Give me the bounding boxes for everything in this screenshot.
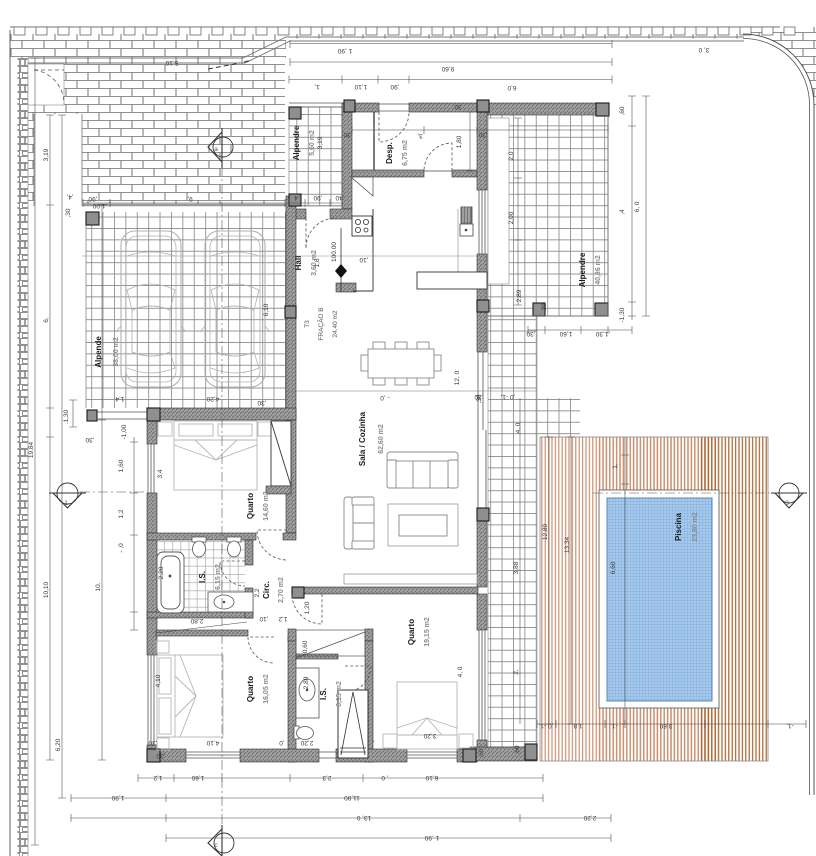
svg-text:1,60: 1,60 [559,330,572,337]
svg-text:,30: ,30 [257,399,266,406]
svg-text:,30: ,30 [526,330,535,337]
svg-text:Quarto: Quarto [407,619,416,645]
svg-text:2,80: 2,80 [190,617,203,624]
svg-text:I.S.: I.S. [319,688,328,700]
svg-text:1,2: 1,2 [153,774,162,781]
svg-text:a: a [214,146,218,153]
svg-text:1,4: 1,4 [115,395,124,402]
svg-text:4,10: 4,10 [206,739,219,746]
svg-text:16,05 m2: 16,05 m2 [263,674,270,704]
svg-text:,: , [373,739,375,746]
svg-text:1,60: 1,60 [191,774,204,781]
svg-text:30: 30 [541,303,548,311]
svg-text:Sala / Cozinha: Sala / Cozinha [358,411,367,466]
svg-text:3,4: 3,4 [157,469,164,478]
svg-text:Quarto: Quarto [246,493,255,519]
svg-text:1,80: 1,80 [456,135,463,148]
svg-text:24,40 m2: 24,40 m2 [332,310,339,337]
svg-text:100.00: 100.00 [331,242,338,262]
svg-text:12,89: 12,89 [542,523,549,540]
svg-text:6,: 6, [43,317,50,323]
svg-text:3,88: 3,88 [513,561,520,574]
svg-text:Desp.: Desp. [385,142,394,164]
svg-text:Alpendre: Alpendre [292,125,301,160]
svg-text:,90: ,90 [88,195,97,202]
svg-text:19,15 m2: 19,15 m2 [424,617,431,647]
svg-text:,30: ,30 [156,752,165,759]
svg-text:4,10: 4,10 [155,674,162,687]
svg-text:,4,: ,4, [66,193,73,200]
svg-text:-1,30: -1,30 [619,307,626,322]
svg-text:10,10: 10,10 [43,581,50,598]
svg-text:6,10: 6,10 [263,303,270,316]
svg-text:I.S.: I.S. [198,571,207,583]
svg-text:,10: ,10 [359,256,368,263]
svg-text:1 ,90: 1 ,90 [337,47,352,54]
svg-text:1,20: 1,20 [304,601,311,614]
svg-text:3: 3 [785,500,789,507]
svg-text:2,20: 2,20 [300,739,313,746]
svg-text:,40: ,40 [335,194,344,201]
svg-text:,0: ,0 [279,739,285,746]
svg-text:5,10: 5,10 [165,59,178,66]
svg-text:,0 -1,: ,0 -1, [538,722,553,729]
svg-text:23,80 m2: 23,80 m2 [692,512,699,542]
svg-text:Circ.: Circ. [262,581,271,599]
svg-text:1,: 1, [612,463,619,469]
svg-text:5,60 m2: 5,60 m2 [309,130,316,156]
svg-text:,0 -1,: ,0 -1, [500,393,515,400]
svg-text:2,00: 2,00 [508,211,515,224]
svg-text:,30: ,30 [478,131,487,138]
svg-text:2,0: 2,0 [508,151,515,160]
svg-text:-1,00: -1,00 [121,424,128,439]
svg-text:38,00 m2: 38,00 m2 [113,337,120,367]
svg-text:- ,0: - ,0 [118,543,125,553]
svg-text:3, 0: 3, 0 [698,46,709,53]
svg-text:,30: ,30 [85,436,94,443]
svg-text:Piscina: Piscina [674,512,683,541]
svg-text:Hall: Hall [294,256,303,271]
svg-text:6,60: 6,60 [610,561,617,574]
svg-text:,4: ,4 [294,194,300,201]
svg-text:FRAÇÃO B: FRAÇÃO B [316,307,325,340]
svg-text:6,20: 6,20 [55,738,62,751]
svg-text:12, 0: 12, 0 [454,370,461,385]
svg-text:,60: ,60 [478,748,485,757]
svg-text:1,60: 1,60 [118,459,125,472]
svg-text:Alpende: Alpende [94,336,103,368]
svg-text:9,60: 9,60 [441,65,454,72]
svg-text:6,75 m2: 6,75 m2 [402,140,409,166]
svg-text:14,60 m2: 14,60 m2 [263,491,270,521]
svg-text:6,15 m2: 6,15 m2 [336,681,343,707]
svg-text:3,60: 3,60 [659,722,672,729]
svg-text:1,2: 1,2 [118,509,125,518]
svg-text:4, 0: 4, 0 [515,422,522,433]
svg-text:2,20: 2,20 [158,566,165,579]
svg-text:13,34: 13,34 [564,536,571,553]
svg-text:1,: 1, [314,83,320,90]
svg-text:1,10: 1,10 [354,83,367,90]
svg-text:.1,30: .1,30 [63,409,70,424]
svg-text:,10: ,10 [259,615,268,622]
svg-text:- ,0: - ,0 [380,394,390,401]
svg-text:4, 0: 4, 0 [457,666,464,677]
svg-text:11,80: 11,80 [344,794,360,801]
svg-text:6,0: 6,0 [507,84,516,91]
svg-text:,60: ,60 [514,745,521,754]
svg-text:,90: ,90 [390,83,399,90]
svg-text:2,89: 2,89 [516,289,523,302]
svg-text:40,86 m2: 40,86 m2 [595,255,602,285]
svg-text:2,70 m2: 2,70 m2 [278,577,285,603]
svg-text:13, 0: 13, 0 [356,814,371,821]
svg-text:2,: 2, [513,669,520,675]
svg-text:T3: T3 [304,320,311,328]
svg-text:2,3: 2,3 [322,774,331,781]
svg-text:3,19: 3,19 [317,136,324,149]
svg-text:,30: ,30 [476,394,483,403]
svg-text:2,20: 2,20 [583,814,596,821]
svg-text:3,: 3, [417,132,423,139]
svg-text:,60: ,60 [619,106,626,115]
svg-text:3,20: 3,20 [423,732,436,739]
svg-text:62,60 m2: 62,60 m2 [378,424,385,454]
svg-text:1,2: 1,2 [278,615,287,622]
svg-text:1: 1 [64,500,68,507]
svg-text:,30: ,30 [65,208,72,217]
svg-text:Quarto: Quarto [246,676,255,702]
svg-text:6, 0: 6, 0 [634,201,641,212]
svg-text:-0,60: -0,60 [302,640,309,655]
svg-text:6,15 m2: 6,15 m2 [215,564,222,590]
svg-text:-1,: -1, [610,722,618,729]
svg-text:1,6: 1,6 [314,258,321,267]
svg-text:10.: 10. [95,582,102,591]
svg-text:4,20: 4,20 [206,395,219,402]
svg-text:,4: ,4 [619,209,626,215]
svg-text:2,80: 2,80 [303,676,310,689]
svg-text:6,10: 6,10 [425,774,438,781]
svg-text:,1,30: ,1,30 [595,330,610,337]
svg-text:Alpendre: Alpendre [578,252,587,287]
svg-text:1 ,90: 1 ,90 [424,834,439,841]
svg-text:9,: 9, [187,195,193,202]
svg-text:-1,: -1, [786,722,794,729]
svg-text:,90: ,90 [313,194,322,201]
svg-text:1,90: 1,90 [111,794,124,801]
svg-text:19,84: 19,84 [28,441,35,458]
svg-text:,30: ,30 [148,739,157,746]
svg-text:3,19: 3,19 [43,148,50,161]
svg-text:1,8: 1,8 [573,722,582,729]
svg-text:,30: ,30 [343,131,352,138]
svg-text:30: 30 [454,103,462,110]
svg-text:2,2: 2,2 [254,588,261,597]
svg-text:, 0: , 0 [381,774,389,781]
